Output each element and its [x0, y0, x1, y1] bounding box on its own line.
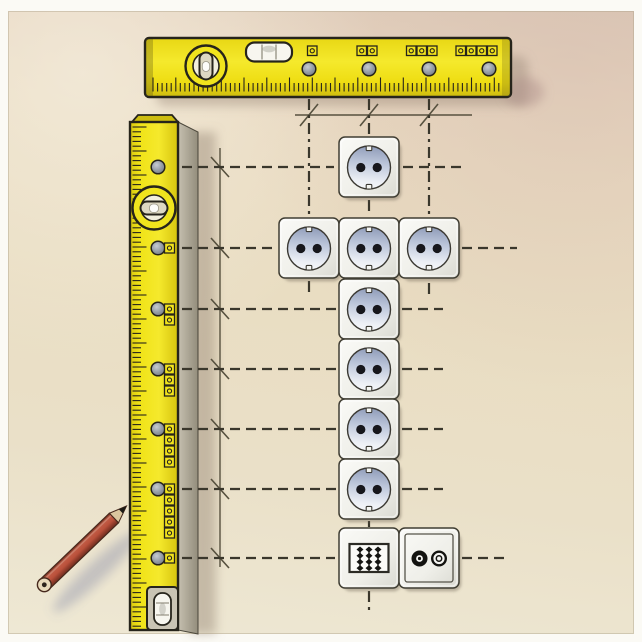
marker-square: [488, 46, 498, 56]
earth-clip-bottom: [366, 446, 372, 451]
screw-hole: [362, 62, 376, 76]
vial-bubble: [150, 204, 159, 212]
marker-square: [165, 553, 175, 563]
screw-hole: [302, 62, 316, 76]
earth-clip-top: [366, 348, 372, 353]
pin-hole-right: [313, 244, 322, 253]
pin-hole-right: [373, 305, 382, 314]
marker-square: [165, 386, 175, 396]
coax-female-inner: [436, 556, 441, 561]
pin-hole-right: [373, 365, 382, 374]
screw-hole: [151, 302, 165, 316]
screw-hole: [151, 422, 165, 436]
power-socket: [339, 339, 402, 403]
pin-hole-left: [356, 163, 365, 172]
pin-hole-left: [356, 485, 365, 494]
pin-hole-right: [373, 163, 382, 172]
earth-clip-bottom: [306, 265, 312, 270]
tube-vial: [147, 587, 178, 630]
vial-bubble: [263, 46, 276, 53]
pin-hole-right: [373, 425, 382, 434]
socket-recess: [348, 468, 391, 511]
marker-square: [165, 375, 175, 385]
socket-recess: [348, 288, 391, 331]
power-socket: [399, 218, 462, 282]
earth-clip-bottom: [426, 265, 432, 270]
marker-square: [165, 446, 175, 456]
screw-hole: [151, 362, 165, 376]
tube-vial: [246, 43, 292, 62]
screw-hole: [151, 482, 165, 496]
pin-hole-right: [433, 244, 442, 253]
pin-hole-left: [296, 244, 305, 253]
marker-square: [417, 46, 427, 56]
pin-hole-left: [356, 305, 365, 314]
vial-bubble: [202, 62, 209, 72]
horizontal-spirit-level: [145, 38, 511, 97]
screw-hole: [151, 160, 165, 174]
level-right-end-face: [502, 39, 510, 96]
marker-square: [165, 506, 175, 516]
earth-clip-bottom: [366, 506, 372, 511]
power-socket: [279, 218, 342, 282]
marker-square: [477, 46, 487, 56]
screw-hole: [422, 62, 436, 76]
power-socket: [339, 399, 402, 463]
earth-clip-bottom: [366, 265, 372, 270]
socket-recess: [348, 146, 391, 189]
pencil-end-core: [42, 582, 47, 587]
marker-square: [165, 243, 175, 253]
marker-square: [357, 46, 367, 56]
earth-clip-top: [426, 227, 432, 232]
marker-square: [165, 517, 175, 527]
marker-square: [165, 457, 175, 467]
socket-recess: [348, 348, 391, 391]
pin-hole-right: [373, 485, 382, 494]
earth-clip-top: [366, 468, 372, 473]
screw-hole: [151, 241, 165, 255]
bullseye-vial: [133, 187, 176, 230]
marker-square: [407, 46, 417, 56]
marker-square: [165, 495, 175, 505]
power-socket: [339, 279, 402, 343]
screw-hole: [482, 62, 496, 76]
power-socket: [339, 459, 402, 523]
power-socket: [339, 218, 402, 282]
coax-male-pin: [418, 557, 421, 560]
tv-antenna-socket: [399, 528, 462, 592]
marker-square: [428, 46, 438, 56]
marker-square: [165, 528, 175, 538]
scene-canvas: [0, 0, 642, 642]
earth-clip-top: [366, 146, 372, 151]
socket-recess: [408, 227, 451, 270]
marker-square: [165, 484, 175, 494]
socket-recess: [288, 227, 331, 270]
vial-bubble: [159, 603, 166, 615]
marker-square: [368, 46, 378, 56]
cast-shadows: [47, 56, 544, 634]
bullseye-vial: [186, 46, 227, 87]
earth-clip-bottom: [366, 386, 372, 391]
socket-recess: [348, 408, 391, 451]
pin-hole-left: [416, 244, 425, 253]
earth-clip-top: [366, 408, 372, 413]
earth-clip-top: [306, 227, 312, 232]
data-socket: [339, 528, 402, 592]
earth-clip-bottom: [366, 326, 372, 331]
level-left-end-face: [146, 39, 153, 96]
screw-hole: [151, 551, 165, 565]
pin-hole-left: [356, 365, 365, 374]
earth-clip-top: [366, 227, 372, 232]
marker-square: [456, 46, 466, 56]
power-socket: [339, 137, 402, 201]
socket-plate: [399, 528, 459, 588]
marker-square: [165, 315, 175, 325]
marker-square: [308, 46, 318, 56]
socket-recess: [348, 227, 391, 270]
pin-hole-left: [356, 425, 365, 434]
marker-square: [165, 304, 175, 314]
vertical-spirit-level: [130, 115, 198, 634]
socket-grid: [279, 137, 462, 592]
marker-square: [165, 364, 175, 374]
pin-hole-right: [373, 244, 382, 253]
pin-hole-left: [356, 244, 365, 253]
marker-square: [467, 46, 477, 56]
earth-clip-top: [366, 288, 372, 293]
marker-square: [165, 435, 175, 445]
marker-square: [165, 424, 175, 434]
earth-clip-bottom: [366, 184, 372, 189]
illustration-page: [0, 0, 642, 642]
